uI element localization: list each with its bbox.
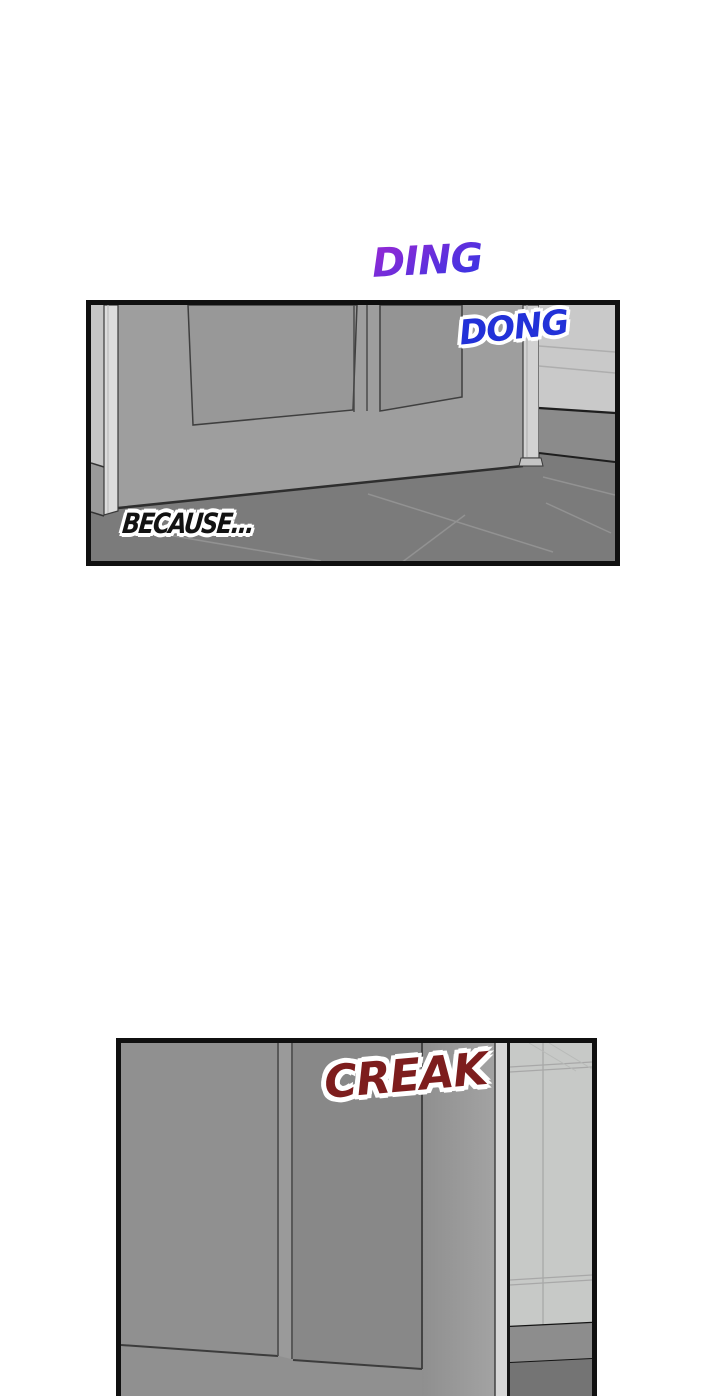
comic-page: DING: [0, 0, 720, 1396]
left-wall: [91, 305, 104, 467]
door-edge-strip: [495, 1043, 507, 1396]
sfx-ding: DING: [371, 238, 483, 284]
post-foot: [519, 458, 543, 466]
door-frame-post-left: [104, 305, 118, 515]
shelf-band-lower: [510, 1359, 592, 1396]
door-stile: [279, 1043, 291, 1359]
door-inset-right: [380, 305, 462, 411]
sfx-dong: DONG: [458, 305, 570, 350]
sfx-creak: CREAK: [322, 1046, 488, 1105]
door-gap: [507, 1043, 510, 1396]
panel-door-creak: CREAK: [116, 1038, 597, 1396]
left-baseboard: [91, 463, 104, 516]
caption-because: BECAUSE...: [121, 510, 254, 538]
panel-entry-door: DONG BECAUSE...: [86, 300, 620, 566]
shelf-band-upper: [510, 1323, 592, 1363]
door-inset-left: [188, 305, 357, 425]
